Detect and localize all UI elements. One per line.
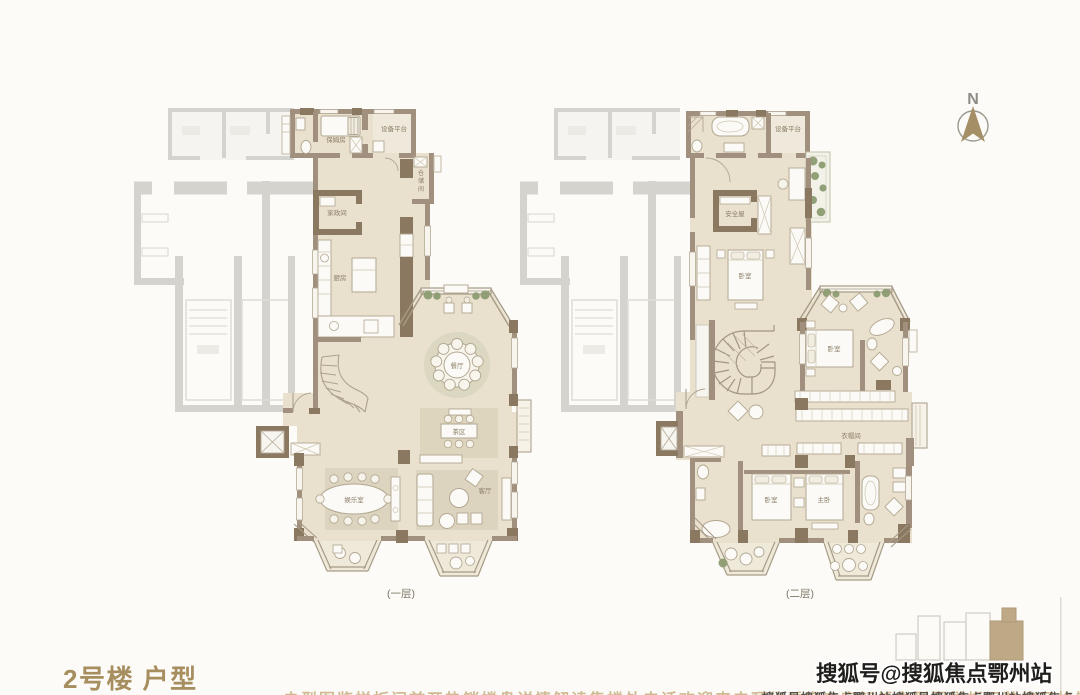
svg-text:搜狐号@搜狐焦点鄂州站: 搜狐号@搜狐焦点鄂州站 <box>816 661 1052 686</box>
svg-text:储: 储 <box>418 177 424 185</box>
svg-text:主卧: 主卧 <box>818 495 832 504</box>
svg-text:设备平台: 设备平台 <box>775 124 801 133</box>
svg-text:卧室: 卧室 <box>765 495 779 504</box>
svg-text:间: 间 <box>418 185 424 193</box>
svg-text:茶区: 茶区 <box>453 427 467 436</box>
svg-text:娱乐室: 娱乐室 <box>344 495 364 504</box>
svg-text:搜狐号搜狐焦点鄂州站搜狐号搜狐焦点鄂州站搜狐焦点: 搜狐号搜狐焦点鄂州站搜狐号搜狐焦点鄂州站搜狐焦点 <box>762 690 1074 695</box>
svg-text:N: N <box>967 91 979 108</box>
svg-text:厨房: 厨房 <box>334 273 347 282</box>
svg-text:设备平台: 设备平台 <box>381 124 407 133</box>
svg-text:餐厅: 餐厅 <box>451 361 465 370</box>
svg-text:仓: 仓 <box>418 169 424 177</box>
svg-text:安全屋: 安全屋 <box>725 209 745 218</box>
svg-text:(一层): (一层) <box>387 588 415 600</box>
svg-text:保姆房: 保姆房 <box>326 135 346 144</box>
svg-text:客厅: 客厅 <box>479 486 493 495</box>
svg-text:衣帽间: 衣帽间 <box>841 431 861 440</box>
svg-text:卧室: 卧室 <box>739 271 753 280</box>
svg-text:家政间: 家政间 <box>327 208 347 217</box>
svg-text:2号楼 户型: 2号楼 户型 <box>63 664 198 694</box>
svg-text:(二层): (二层) <box>786 588 814 600</box>
svg-text:卧室: 卧室 <box>828 344 842 353</box>
